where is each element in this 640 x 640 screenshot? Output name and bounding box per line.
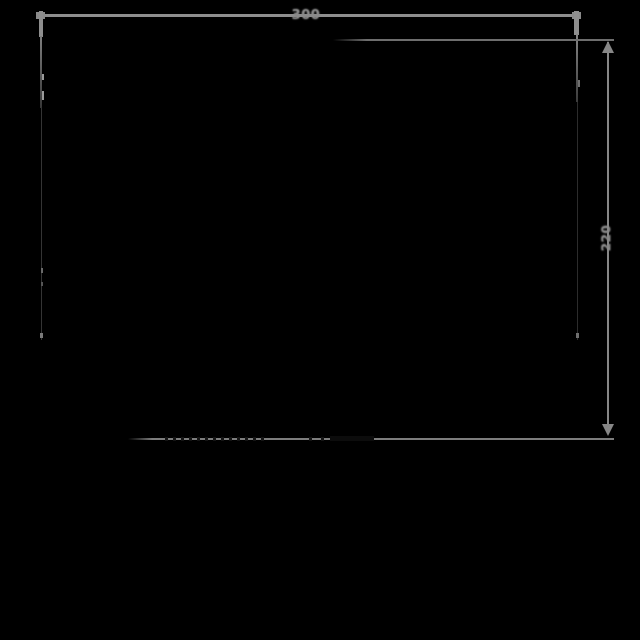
left-edge-remnant-mark xyxy=(42,91,44,100)
arrow-down-icon xyxy=(602,424,614,436)
left-edge-remnant-mark xyxy=(40,333,43,338)
right-edge-remnant-mark xyxy=(576,333,579,338)
right-extension-tick-tail xyxy=(576,34,578,102)
height-dimension-label: 220 xyxy=(599,225,613,252)
bottom-text-remnant-ticks-2 xyxy=(300,437,328,441)
right-edge-remnant-mark xyxy=(578,80,580,87)
left-edge-remnant-mark xyxy=(41,268,43,273)
top-extension-line xyxy=(333,39,614,41)
height-dimension-label-box: 220 xyxy=(592,212,620,264)
arrow-up-icon xyxy=(602,41,614,53)
left-extension-tick xyxy=(39,11,43,37)
left-edge-remnant-mark xyxy=(42,74,44,80)
object-right-edge xyxy=(577,102,578,340)
bottom-text-remnant-ticks xyxy=(160,437,266,441)
right-extension-tick xyxy=(574,11,579,35)
dimension-drawing-canvas: 300 220 xyxy=(0,0,640,640)
object-left-edge xyxy=(41,107,42,340)
bottom-dark-overlap-segment xyxy=(330,436,374,441)
left-edge-remnant-mark xyxy=(41,282,43,286)
width-dimension-label: 300 xyxy=(278,8,334,23)
